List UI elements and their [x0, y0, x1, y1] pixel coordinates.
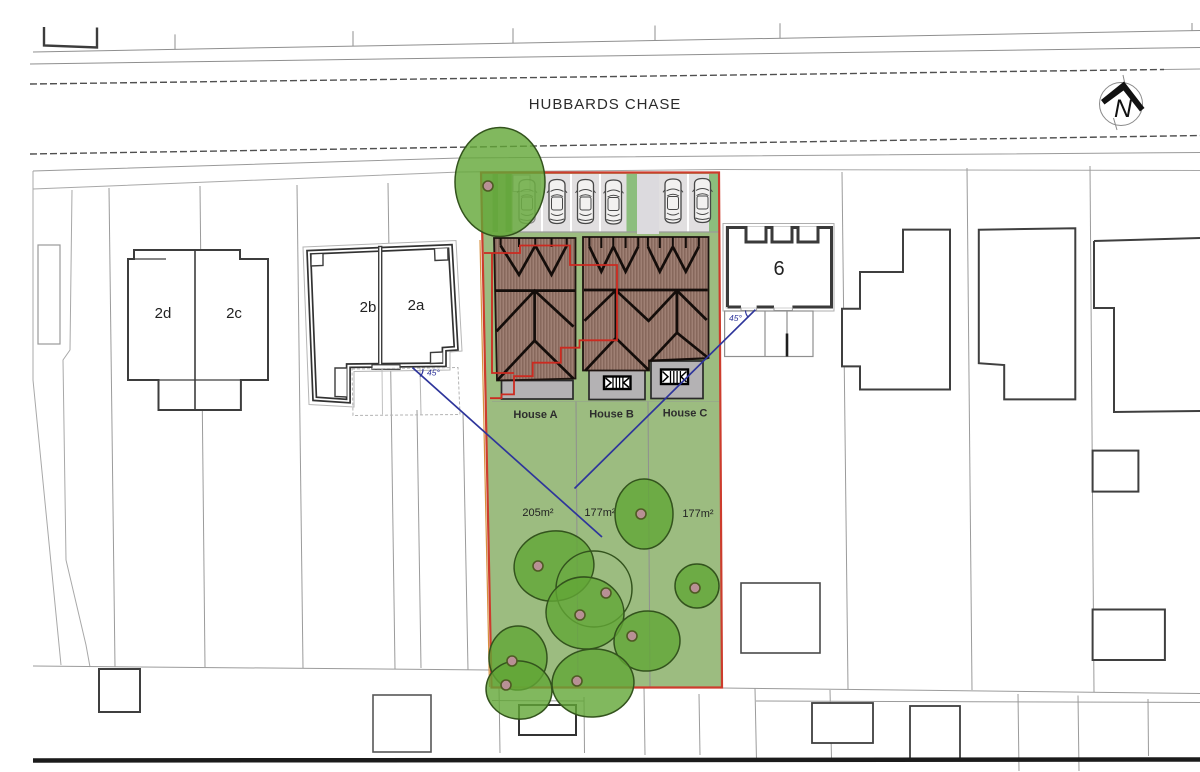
svg-text:2a: 2a	[408, 297, 425, 314]
svg-text:N: N	[1114, 95, 1133, 123]
svg-text:177m²: 177m²	[584, 507, 616, 519]
svg-text:HUBBARDS CHASE: HUBBARDS CHASE	[529, 96, 682, 113]
svg-text:House B: House B	[589, 409, 634, 421]
svg-text:2d: 2d	[155, 305, 172, 322]
svg-text:45°: 45°	[427, 368, 440, 378]
svg-text:2c: 2c	[226, 305, 242, 322]
svg-text:205m²: 205m²	[522, 507, 554, 519]
svg-text:45°: 45°	[729, 313, 742, 323]
svg-text:House A: House A	[513, 409, 557, 421]
svg-text:House C: House C	[663, 408, 708, 420]
svg-text:6: 6	[773, 258, 784, 280]
svg-text:177m²: 177m²	[682, 508, 714, 520]
svg-text:2b: 2b	[360, 299, 377, 316]
